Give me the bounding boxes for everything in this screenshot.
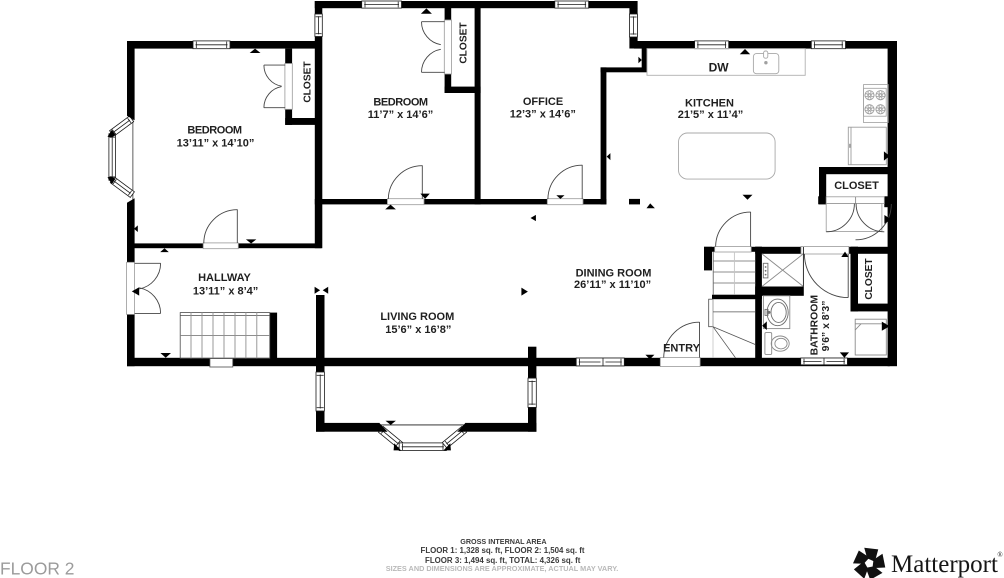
svg-text:9’6” x 8’3”: 9’6” x 8’3” — [821, 301, 832, 352]
svg-text:13’11” x 8’4”: 13’11” x 8’4” — [193, 285, 258, 297]
svg-text:FLOOR 1: 1,328 sq. ft, FLOOR 2: FLOOR 1: 1,328 sq. ft, FLOOR 2: 1,504 sq… — [421, 546, 585, 555]
svg-text:13’11” x 14’10”: 13’11” x 14’10” — [177, 137, 255, 149]
svg-text:DW: DW — [709, 61, 730, 75]
svg-text:SIZES AND DIMENSIONS ARE APPRO: SIZES AND DIMENSIONS ARE APPROXIMATE, AC… — [386, 564, 619, 573]
svg-text:GROSS INTERNAL AREA: GROSS INTERNAL AREA — [460, 537, 546, 546]
svg-text:LIVING ROOM: LIVING ROOM — [380, 311, 454, 323]
svg-text:KITCHEN: KITCHEN — [685, 98, 734, 110]
svg-text:26’11” x 11’10”: 26’11” x 11’10” — [574, 279, 651, 291]
svg-text:11’7” x 14’6”: 11’7” x 14’6” — [368, 109, 433, 121]
svg-text:12’3” x 14’6”: 12’3” x 14’6” — [510, 108, 576, 120]
svg-text:HALLWAY: HALLWAY — [198, 272, 251, 284]
svg-text:BATHROOM: BATHROOM — [810, 295, 821, 355]
svg-text:®: ® — [997, 551, 1003, 559]
svg-text:CLOSET: CLOSET — [834, 180, 879, 192]
svg-text:Matterport: Matterport — [891, 551, 998, 578]
svg-text:OFFICE: OFFICE — [523, 96, 563, 108]
svg-text:CLOSET: CLOSET — [459, 22, 470, 64]
svg-text:15’6” x 16’8”: 15’6” x 16’8” — [385, 324, 451, 336]
svg-text:BEDROOM: BEDROOM — [187, 125, 242, 137]
svg-text:21’5” x 11’4”: 21’5” x 11’4” — [678, 109, 743, 121]
svg-text:CLOSET: CLOSET — [864, 258, 875, 300]
svg-text:CLOSET: CLOSET — [302, 61, 313, 103]
svg-text:BEDROOM: BEDROOM — [373, 97, 428, 109]
svg-text:FLOOR 2: FLOOR 2 — [0, 558, 74, 578]
svg-text:ENTRY: ENTRY — [663, 343, 701, 355]
svg-text:DINING ROOM: DINING ROOM — [576, 268, 652, 280]
